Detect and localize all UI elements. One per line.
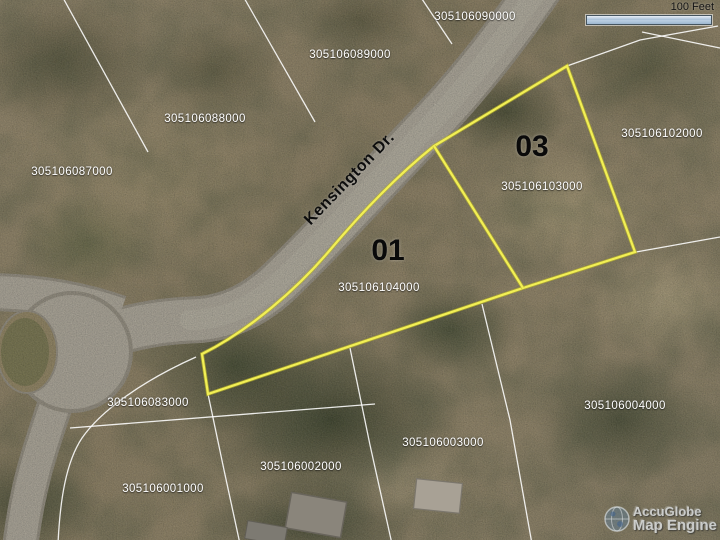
accuglobe-watermark: AccuGlobe Map Engine (603, 502, 717, 536)
scale-bar: 100 Feet (586, 1, 716, 25)
terrain-grain-light (0, 0, 720, 540)
scale-bar-label: 100 Feet (586, 1, 716, 13)
parcel-id-label: 305106089000 (309, 49, 391, 61)
parcel-id-label: 305106090000 (434, 11, 516, 23)
lot-number-label: 01 (371, 234, 404, 268)
parcel-id-label: 305106088000 (164, 113, 246, 125)
parcel-id-label: 305106087000 (31, 166, 113, 178)
house-roof (414, 479, 463, 514)
parcel-id-label: 305106001000 (122, 483, 204, 495)
map-overlay-graphics (0, 0, 720, 540)
watermark-line2: Map Engine (633, 518, 717, 533)
lot-number-label: 03 (515, 130, 548, 164)
globe-icon (603, 502, 631, 536)
parcel-id-label: 305106003000 (402, 437, 484, 449)
map-viewport[interactable]: 305106090000 305106089000 305106088000 3… (0, 0, 720, 540)
parcel-id-label: 305106104000 (338, 282, 420, 294)
parcel-id-label: 305106103000 (501, 181, 583, 193)
watermark-line1: AccuGlobe (633, 505, 717, 518)
parcel-id-label: 305106083000 (107, 397, 189, 409)
scale-bar-rule (586, 15, 712, 25)
parcel-id-label: 305106102000 (621, 128, 703, 140)
parcel-id-label: 305106002000 (260, 461, 342, 473)
parcel-id-label: 305106004000 (584, 400, 666, 412)
